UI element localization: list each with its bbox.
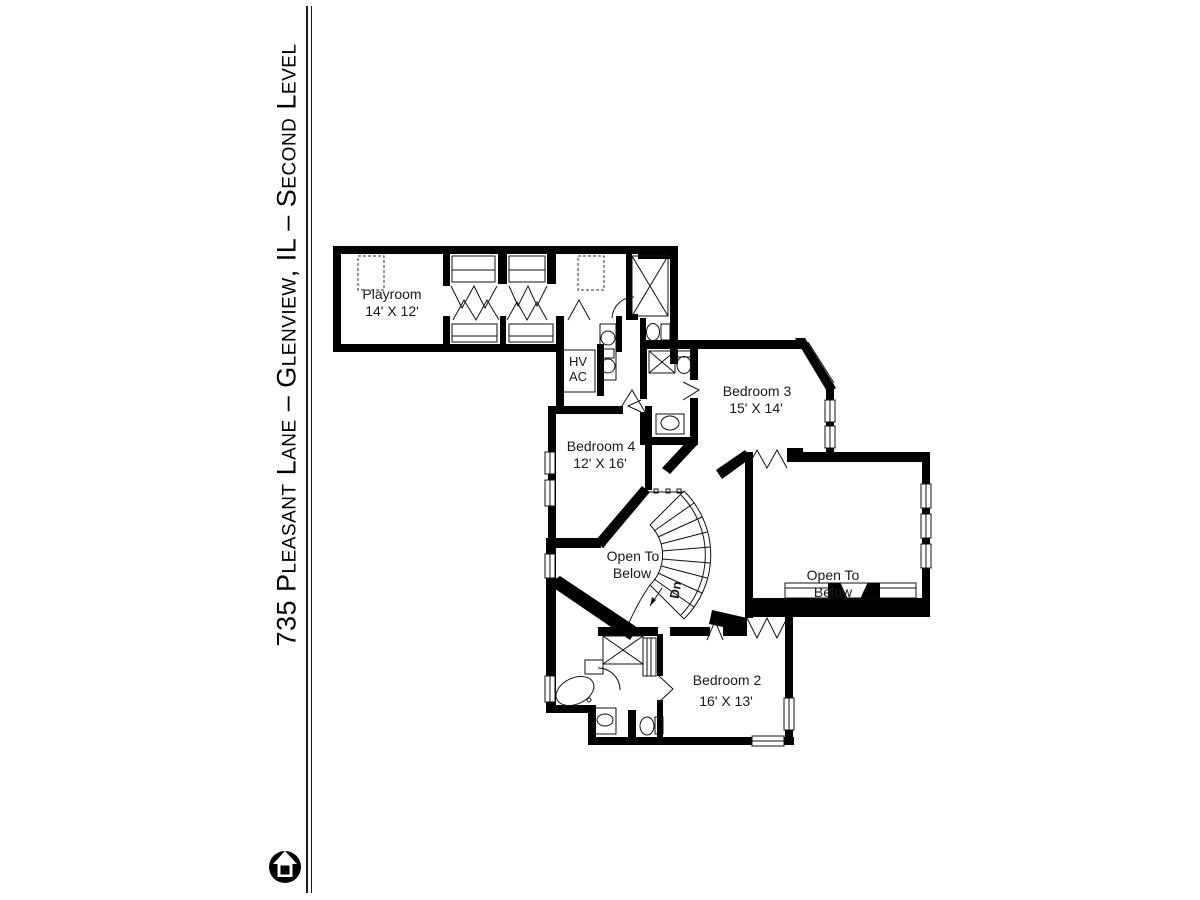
bedroom3-dims: 15' X 14' — [729, 400, 783, 416]
open-below-right-line2: Below — [814, 584, 853, 600]
bedroom4-dims: 12' X 16' — [573, 455, 627, 471]
stairs-dn-label: Dn — [667, 580, 685, 600]
floor-plan-svg: Playroom 14' X 12' HV AC Bedroom 4 12' X… — [0, 0, 1200, 900]
north-letter: N — [282, 868, 287, 875]
open-below-left-line1: Open To — [607, 548, 660, 564]
toilet-icon — [677, 351, 692, 374]
north-arrow-icon: N — [269, 851, 301, 883]
playroom-dims: 14' X 12' — [365, 303, 419, 319]
sink-icon — [594, 708, 616, 734]
hvac-label-line2: AC — [569, 369, 587, 384]
sink-icon — [656, 414, 684, 434]
toilet-icon — [647, 324, 671, 341]
shower-icon — [632, 256, 668, 316]
bedroom2-label: Bedroom 2 — [693, 672, 762, 688]
bedroom4-label: Bedroom 4 — [567, 438, 636, 454]
open-below-left-line2: Below — [613, 565, 652, 581]
bedroom2-dims: 16' X 13' — [699, 693, 753, 709]
exterior-walls — [333, 246, 930, 745]
bedroom3-label: Bedroom 3 — [723, 383, 792, 399]
playroom-label: Playroom — [362, 286, 421, 302]
open-below-right-line1: Open To — [807, 567, 860, 583]
hvac-label-line1: HV — [569, 354, 587, 369]
page: 735 Pleasant Lane – Glenview, IL – Secon… — [0, 0, 1200, 900]
shower-icon — [603, 636, 643, 664]
